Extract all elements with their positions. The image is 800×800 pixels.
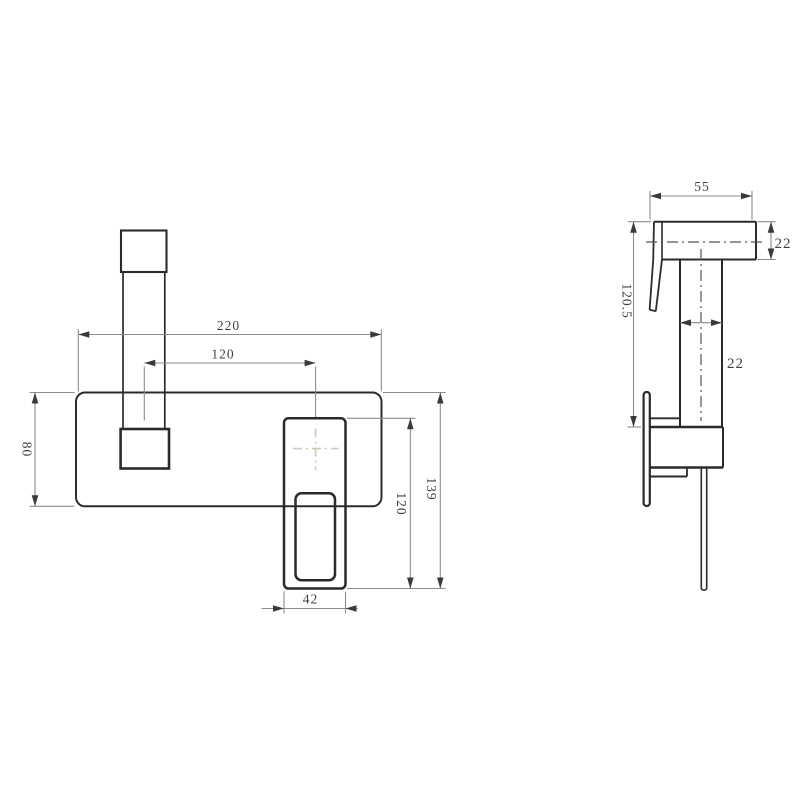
dim-overall-height-139: 139 [347, 393, 446, 589]
dim-body-section-22: 22 [680, 319, 744, 372]
dim-label: 22 [727, 356, 744, 372]
front-view: 220 120 80 139 [20, 231, 446, 614]
spout-top-block [121, 231, 167, 273]
side-view: 55 22 120.5 22 [620, 179, 792, 590]
handle-plate [284, 418, 346, 588]
dim-handle-width-42: 42 [262, 592, 358, 614]
dim-spout-to-handle-120: 120 [144, 346, 315, 420]
dim-label: 120 [211, 346, 234, 361]
technical-drawing-page: 220 120 80 139 [0, 0, 800, 800]
handle-center-mark [293, 429, 339, 471]
dim-spout-section-22: 22 [758, 222, 792, 260]
supply-pipe [701, 468, 706, 591]
spout-side [653, 222, 756, 261]
spout-column [121, 231, 169, 469]
dim-drop-height-120-5: 120.5 [620, 222, 652, 427]
dim-plate-height-80: 80 [20, 393, 75, 507]
wall-plate-side [644, 392, 650, 506]
spout-inlet-square [121, 429, 169, 469]
dim-label: 220 [217, 318, 240, 333]
dim-label: 80 [20, 442, 35, 458]
valve-body [650, 418, 723, 476]
drawing-canvas: 220 120 80 139 [0, 0, 800, 800]
dim-label: 42 [303, 592, 319, 607]
lever-handle-side [650, 260, 662, 312]
dim-label: 120 [394, 492, 409, 515]
dim-label: 120.5 [620, 283, 635, 318]
dim-spout-reach-55: 55 [650, 179, 752, 220]
dim-label: 55 [694, 179, 710, 194]
dim-label: 22 [775, 236, 792, 252]
dim-label: 139 [424, 477, 439, 500]
handle-body [284, 418, 346, 588]
